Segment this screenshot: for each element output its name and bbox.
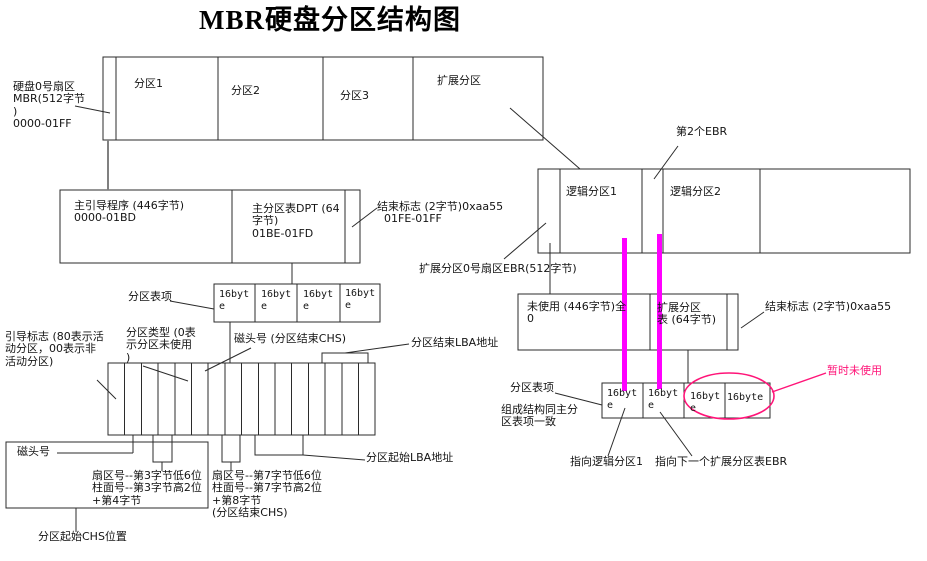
start-chs-position-label: 分区起始CHS位置 [38,531,127,543]
boot-program-label: 主引导程序 (446字节) 0000-01BD [74,200,184,225]
end-lba-label: 分区结束LBA地址 [411,337,498,349]
ebr2-pointer [654,146,678,179]
endflag-right-pointer [741,312,764,328]
mbr-structure-diagram: MBR硬盘分区结构图 硬盘0号扇区 MBR(512字节 ) 0000-01FF … [0,0,927,561]
partition1-label: 分区1 [134,78,163,90]
partition3-label: 分区3 [340,90,369,102]
entry-cell: 16byt e [303,289,333,312]
entry-cell: 16byt e [261,289,291,312]
start-chs-bytes-label: 扇区号--第3字节低6位 柱面号--第3字节高2位 +第4字节 [92,470,202,507]
ebr-sector-pointer [504,223,546,259]
startchs-bracket [153,435,172,462]
mbr-endflag-label: 结束标志 (2字节)0xaa55 01FE-01FF [377,201,503,226]
points-logical1-line [608,408,625,456]
points-next-line [660,412,692,456]
endflag-left-pointer [352,208,377,227]
ebr-sector-label: 扩展分区0号扇区EBR(512字节) [419,263,577,275]
start-lba-label: 分区起始LBA地址 [366,452,453,464]
endchs-bracket [222,435,240,462]
head-end-label: 磁头号 (分区结束CHS) [234,333,346,345]
entry-label-pointer [170,301,214,309]
entry-cell: 16byt e [219,289,249,312]
points-next-label: 指向下一个扩展分区表EBR [655,456,787,468]
ebr-entry-label: 分区表项 [510,382,554,394]
end-chs-bytes-label: 扇区号--第7字节低6位 柱面号--第7字节高2位 +第8字节 (分区结束CHS… [212,470,322,519]
ebr-endflag-label: 结束标志 (2字节)0xaa55 [765,301,891,313]
ebr-entry-cell: 16byt e [648,388,678,411]
startlba-pointer [303,455,365,460]
ebr-entry-cell: 16byt e [690,391,720,414]
partition2-label: 分区2 [231,85,260,97]
parttype-pointer [143,366,188,381]
extended-partition-label: 扩展分区 [437,75,481,87]
temp-unused-label: 暂时未使用 [827,365,882,377]
extended-row-box [538,169,910,253]
logical2-label: 逻辑分区2 [670,186,721,198]
mbr-sector-label: 硬盘0号扇区 MBR(512字节 ) 0000-01FF [13,81,85,130]
points-logical1-label: 指向逻辑分区1 [570,456,643,468]
ebr-entry-cell: 16byt e [607,388,637,411]
extended-to-logical-line [510,108,580,169]
ebr-table-label: 扩展分区 表 (64字节) [657,302,716,327]
headend-pointer [205,348,251,371]
entry-cell: 16byt e [345,288,375,311]
bootflag-pointer [97,380,116,399]
byte-cell-dividers [125,363,359,435]
boot-flag-label: 引导标志 (80表示活 动分区，00表示非 活动分区) [5,331,104,368]
ebr-unused-label: 未使用 (446字节)全 0 [527,301,626,326]
part-type-label: 分区类型 (0表 示分区未使用 ) [126,327,196,364]
ebr2-label: 第2个EBR [676,126,727,138]
dpt-label: 主分区表DPT (64 字节) 01BE-01FD [252,203,340,240]
endlba-pointer [345,344,409,353]
diagram-title: MBR硬盘分区结构图 [150,6,510,36]
startlba-bracket [255,435,303,455]
temp-unused-pointer [772,373,826,392]
ebr-entry-cell: 16byte [727,392,763,404]
head-start-label: 磁头号 [17,446,50,458]
endlba-bracket [322,353,368,363]
ebr-entry-note: 组成结构同主分 区表项一致 [501,404,578,429]
logical1-label: 逻辑分区1 [566,186,617,198]
entry-label-left: 分区表项 [128,291,172,303]
